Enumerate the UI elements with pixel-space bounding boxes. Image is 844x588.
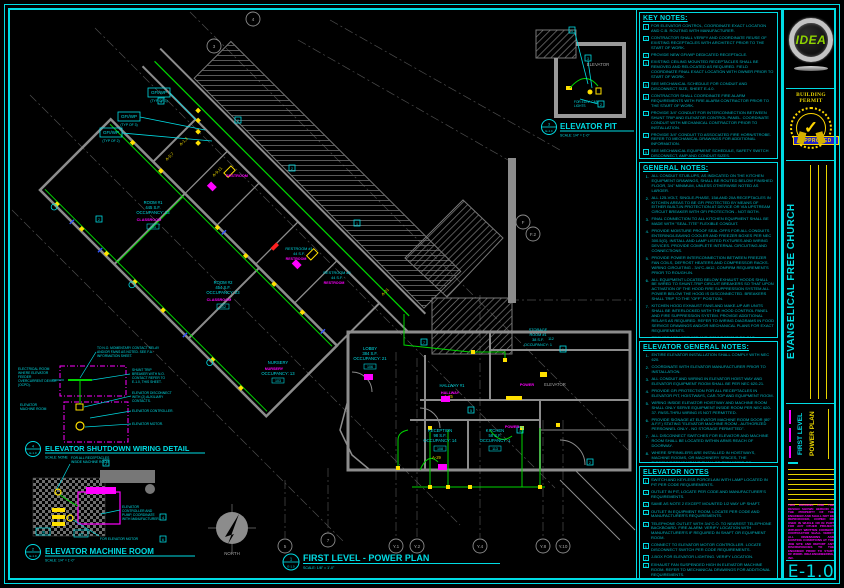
title-block-separator	[781, 10, 784, 578]
sheet-border-inner	[8, 8, 836, 580]
notes-column-separator	[636, 10, 637, 578]
